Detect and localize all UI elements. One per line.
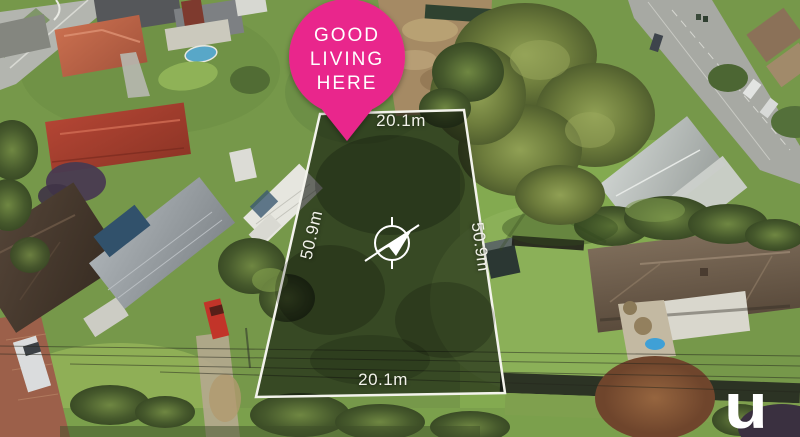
marker-text: GOOD LIVING HERE	[287, 24, 407, 96]
aerial-photo: GOOD LIVING HERE 20.1m 20.1m 50.9m 50.9m…	[0, 0, 800, 437]
marker-line-1: GOOD	[287, 24, 407, 48]
dimension-label-bottom: 20.1m	[343, 370, 423, 390]
marker-line-3: HERE	[287, 72, 407, 96]
dimension-label-top: 20.1m	[361, 111, 441, 131]
marker-line-2: LIVING	[287, 48, 407, 72]
brand-logo: u	[724, 376, 768, 436]
